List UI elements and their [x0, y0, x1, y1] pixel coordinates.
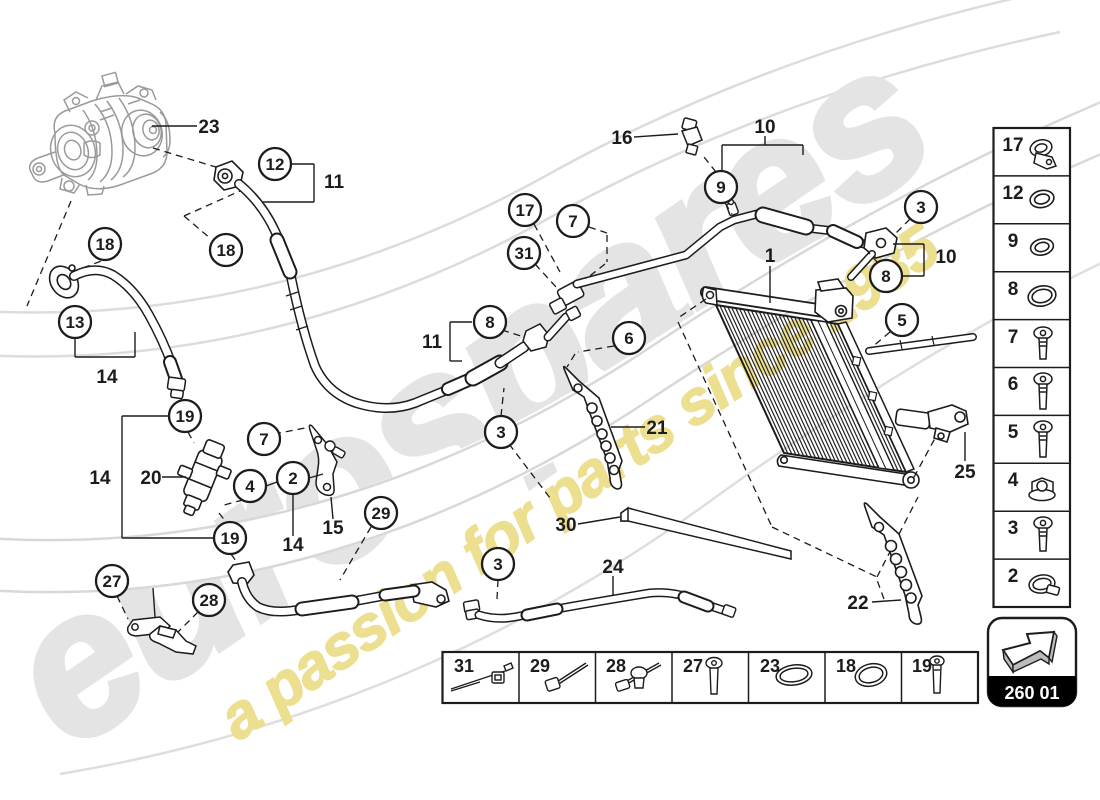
svg-text:4: 4	[1008, 470, 1019, 491]
svg-text:22: 22	[847, 593, 868, 614]
svg-text:9: 9	[1008, 231, 1019, 252]
svg-text:23: 23	[198, 117, 219, 138]
svg-text:17: 17	[516, 201, 535, 220]
svg-text:21: 21	[646, 418, 668, 439]
svg-text:16: 16	[611, 128, 632, 149]
svg-text:14: 14	[282, 535, 304, 556]
svg-text:7: 7	[1008, 327, 1019, 348]
svg-text:14: 14	[89, 468, 111, 489]
svg-text:3: 3	[493, 555, 502, 574]
svg-text:8: 8	[485, 313, 494, 332]
svg-text:4: 4	[245, 477, 255, 496]
svg-text:6: 6	[624, 329, 633, 348]
svg-text:2: 2	[1008, 566, 1019, 587]
svg-text:15: 15	[322, 518, 344, 539]
svg-text:18: 18	[96, 235, 115, 254]
svg-text:17: 17	[1002, 135, 1023, 156]
svg-text:5: 5	[897, 311, 906, 330]
svg-text:10: 10	[754, 117, 775, 138]
svg-text:6: 6	[1008, 374, 1019, 395]
svg-text:8: 8	[1008, 279, 1019, 300]
svg-text:12: 12	[266, 155, 285, 174]
svg-text:19: 19	[221, 529, 240, 548]
svg-text:25: 25	[954, 462, 976, 483]
svg-text:19: 19	[912, 656, 932, 676]
svg-text:28: 28	[606, 656, 626, 676]
svg-text:29: 29	[530, 656, 550, 676]
svg-text:31: 31	[454, 656, 474, 676]
svg-text:19: 19	[176, 407, 195, 426]
svg-text:9: 9	[716, 178, 725, 197]
svg-text:31: 31	[515, 244, 534, 263]
svg-text:20: 20	[140, 468, 161, 489]
svg-text:27: 27	[103, 572, 122, 591]
svg-text:11: 11	[324, 172, 345, 193]
svg-text:10: 10	[935, 247, 956, 268]
svg-text:7: 7	[568, 212, 577, 231]
svg-text:2: 2	[288, 469, 297, 488]
svg-text:3: 3	[1008, 518, 1019, 539]
svg-text:18: 18	[217, 241, 236, 260]
svg-text:1: 1	[765, 246, 776, 267]
svg-text:7: 7	[259, 430, 268, 449]
svg-text:3: 3	[496, 423, 505, 442]
svg-text:30: 30	[555, 515, 576, 536]
svg-text:11: 11	[422, 332, 443, 353]
svg-text:5: 5	[1008, 422, 1019, 443]
svg-text:18: 18	[836, 656, 856, 676]
svg-text:28: 28	[200, 591, 219, 610]
svg-text:24: 24	[602, 557, 624, 578]
svg-text:13: 13	[66, 313, 85, 332]
svg-text:260 01: 260 01	[1004, 683, 1059, 703]
svg-text:3: 3	[916, 198, 925, 217]
svg-text:27: 27	[683, 656, 703, 676]
svg-text:12: 12	[1002, 183, 1023, 204]
svg-text:29: 29	[372, 504, 391, 523]
svg-text:8: 8	[881, 267, 890, 286]
svg-text:14: 14	[96, 367, 118, 388]
